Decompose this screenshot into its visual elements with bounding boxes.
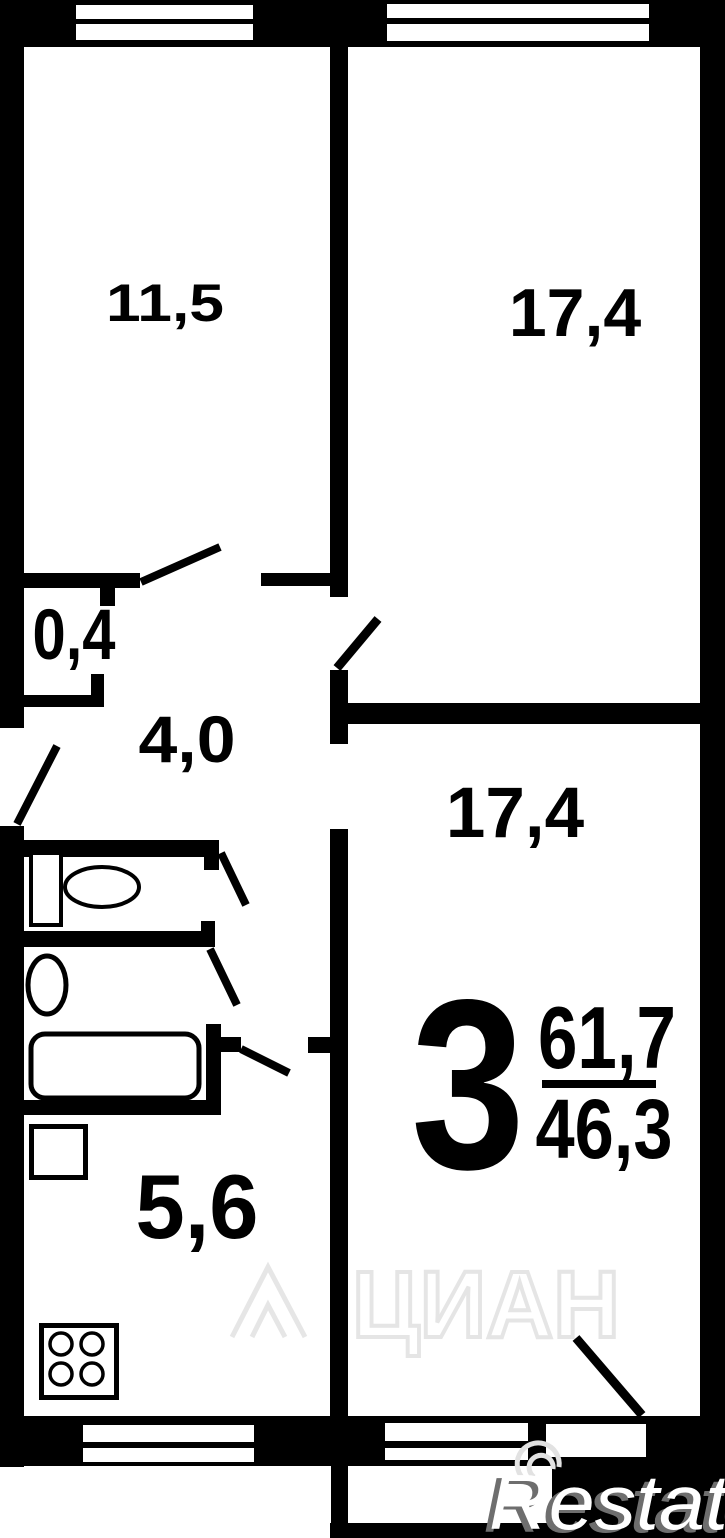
svg-text:5,6: 5,6 <box>136 1157 259 1258</box>
svg-text:Restate: Restate <box>489 1458 725 1538</box>
svg-text:11,5: 11,5 <box>106 274 224 333</box>
svg-text:3: 3 <box>411 950 525 1220</box>
svg-text:4,0: 4,0 <box>139 702 236 776</box>
svg-text:46,3: 46,3 <box>536 1082 673 1176</box>
svg-text:61,7: 61,7 <box>538 988 676 1087</box>
svg-text:17,4: 17,4 <box>509 275 642 351</box>
svg-text:0,4: 0,4 <box>33 596 116 675</box>
svg-text:17,4: 17,4 <box>446 774 585 853</box>
